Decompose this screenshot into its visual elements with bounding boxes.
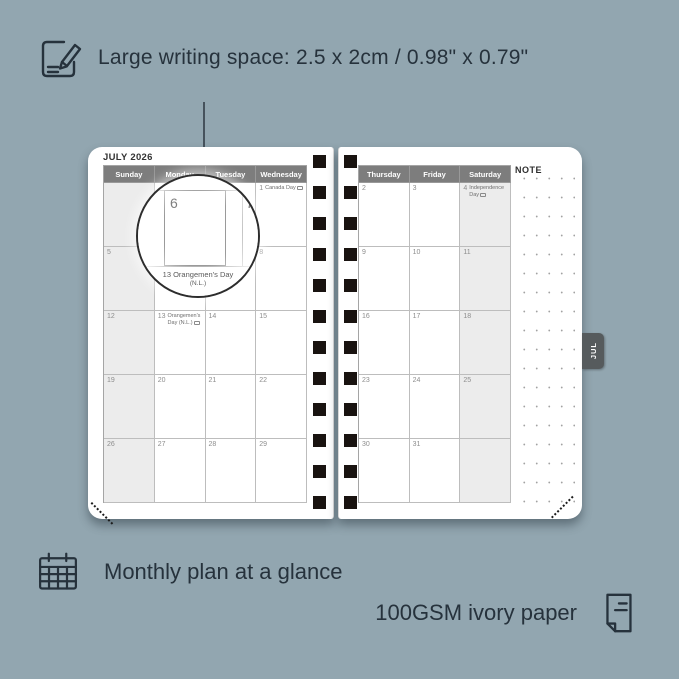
- monthly-plan-label: Monthly plan at a glance: [104, 559, 343, 585]
- calendar-day-cell: [460, 439, 511, 503]
- day-number: 26: [107, 441, 115, 449]
- calendar-day-cell: 8: [256, 247, 307, 311]
- day-header: Wednesday: [256, 166, 307, 183]
- spiral-binding-holes: [344, 155, 357, 509]
- month-tab-label: JUL: [589, 342, 598, 359]
- monthly-plan-callout: Monthly plan at a glance: [36, 550, 343, 594]
- calendar-day-cell: 22: [256, 375, 307, 439]
- calendar-day-cell: 30: [359, 439, 410, 503]
- day-number: 9: [362, 249, 366, 257]
- magnified-day-number: 6: [170, 196, 178, 210]
- calendar-day-cell: 27: [155, 439, 206, 503]
- day-number: 4: [463, 185, 467, 193]
- calendar-day-cell: 2: [359, 183, 410, 247]
- note-title: NOTE: [515, 163, 545, 177]
- day-number: 28: [209, 441, 217, 449]
- calendar-day-cell: 12: [104, 311, 155, 375]
- day-header: Sunday: [104, 166, 155, 183]
- calendar-day-cell: 10: [410, 247, 461, 311]
- calendar-day-cell: 20: [155, 375, 206, 439]
- day-number: 22: [259, 377, 267, 385]
- calendar-day-cell: 9: [359, 247, 410, 311]
- product-infographic: Large writing space: 2.5 x 2cm / 0.98" x…: [0, 0, 679, 679]
- day-number: 3: [413, 185, 417, 193]
- calendar-day-cell: 14: [206, 311, 257, 375]
- magnified-holiday-label: (N.L.): [138, 280, 258, 287]
- calendar-day-cell: 16: [359, 311, 410, 375]
- calendar-day-cell: 28: [206, 439, 257, 503]
- note-section: NOTE: [515, 165, 575, 507]
- calendar-grid-icon: [36, 550, 80, 594]
- planner-right-page: ThursdayFridaySaturday234Independence Da…: [338, 147, 582, 519]
- holiday-badge-icon: [194, 321, 200, 325]
- magnifier-circle: 6 7 13 Orangemen's Day (N.L.): [136, 174, 260, 298]
- calendar-day-cell: 23: [359, 375, 410, 439]
- month-title: JULY 2026: [103, 152, 153, 163]
- magnified-day-number: 7: [246, 196, 254, 210]
- writing-space-callout: Large writing space: 2.5 x 2cm / 0.98" x…: [36, 34, 528, 82]
- dot-grid: [515, 165, 575, 507]
- paper-label: 100GSM ivory paper: [375, 600, 577, 626]
- day-number: 13: [158, 313, 166, 321]
- calendar-day-cell: 17: [410, 311, 461, 375]
- paper-callout: 100GSM ivory paper: [375, 590, 641, 636]
- calendar-day-cell: 25: [460, 375, 511, 439]
- day-number: 25: [463, 377, 471, 385]
- calendar-day-cell: 21: [206, 375, 257, 439]
- day-number: 12: [107, 313, 115, 321]
- calendar-day-cell: 4Independence Day: [460, 183, 511, 247]
- day-number: 2: [362, 185, 366, 193]
- day-number: 15: [259, 313, 267, 321]
- calendar-grid-right: ThursdayFridaySaturday234Independence Da…: [358, 165, 511, 503]
- spiral-binding-holes: [313, 155, 326, 509]
- day-number: 27: [158, 441, 166, 449]
- day-number: 21: [209, 377, 217, 385]
- calendar-day-cell: 11: [460, 247, 511, 311]
- pencil-note-icon: [36, 34, 84, 82]
- calendar-day-cell: 29: [256, 439, 307, 503]
- day-number: 5: [107, 249, 111, 257]
- calendar-day-cell: 26: [104, 439, 155, 503]
- day-number: 16: [362, 313, 370, 321]
- day-number: 18: [463, 313, 471, 321]
- day-number: 31: [413, 441, 421, 449]
- day-number: 10: [413, 249, 421, 257]
- holiday-label: Canada Day: [265, 185, 305, 192]
- calendar-day-cell: 3: [410, 183, 461, 247]
- magnified-holiday-label: 13 Orangemen's Day: [138, 270, 258, 279]
- day-number: 11: [463, 249, 470, 257]
- calendar-day-cell: 13Orangemen's Day (N.L.): [155, 311, 206, 375]
- paper-sheet-icon: [595, 590, 641, 636]
- writing-space-label: Large writing space: 2.5 x 2cm / 0.98" x…: [98, 46, 528, 70]
- day-number: 20: [158, 377, 166, 385]
- day-header: Saturday: [460, 166, 511, 183]
- holiday-label: Independence Day: [469, 185, 509, 199]
- calendar-day-cell: 15: [256, 311, 307, 375]
- day-number: 23: [362, 377, 370, 385]
- holiday-badge-icon: [480, 193, 486, 197]
- calendar-day-cell: 24: [410, 375, 461, 439]
- day-number: 19: [107, 377, 115, 385]
- calendar-day-cell: 31: [410, 439, 461, 503]
- day-header: Friday: [410, 166, 461, 183]
- day-number: 29: [259, 441, 267, 449]
- day-number: 8: [259, 249, 263, 257]
- day-number: 14: [209, 313, 217, 321]
- day-header: Thursday: [359, 166, 410, 183]
- month-tab: JUL: [582, 333, 604, 369]
- holiday-badge-icon: [297, 186, 303, 190]
- calendar-day-cell: 19: [104, 375, 155, 439]
- day-number: 24: [413, 377, 421, 385]
- calendar-day-cell: 18: [460, 311, 511, 375]
- day-number: 17: [413, 313, 421, 321]
- holiday-label: Orangemen's Day (N.L.): [168, 313, 204, 327]
- day-number: 1: [259, 185, 263, 193]
- day-number: 30: [362, 441, 370, 449]
- calendar-day-cell: 1Canada Day: [256, 183, 307, 247]
- corner-stitch: [91, 502, 114, 525]
